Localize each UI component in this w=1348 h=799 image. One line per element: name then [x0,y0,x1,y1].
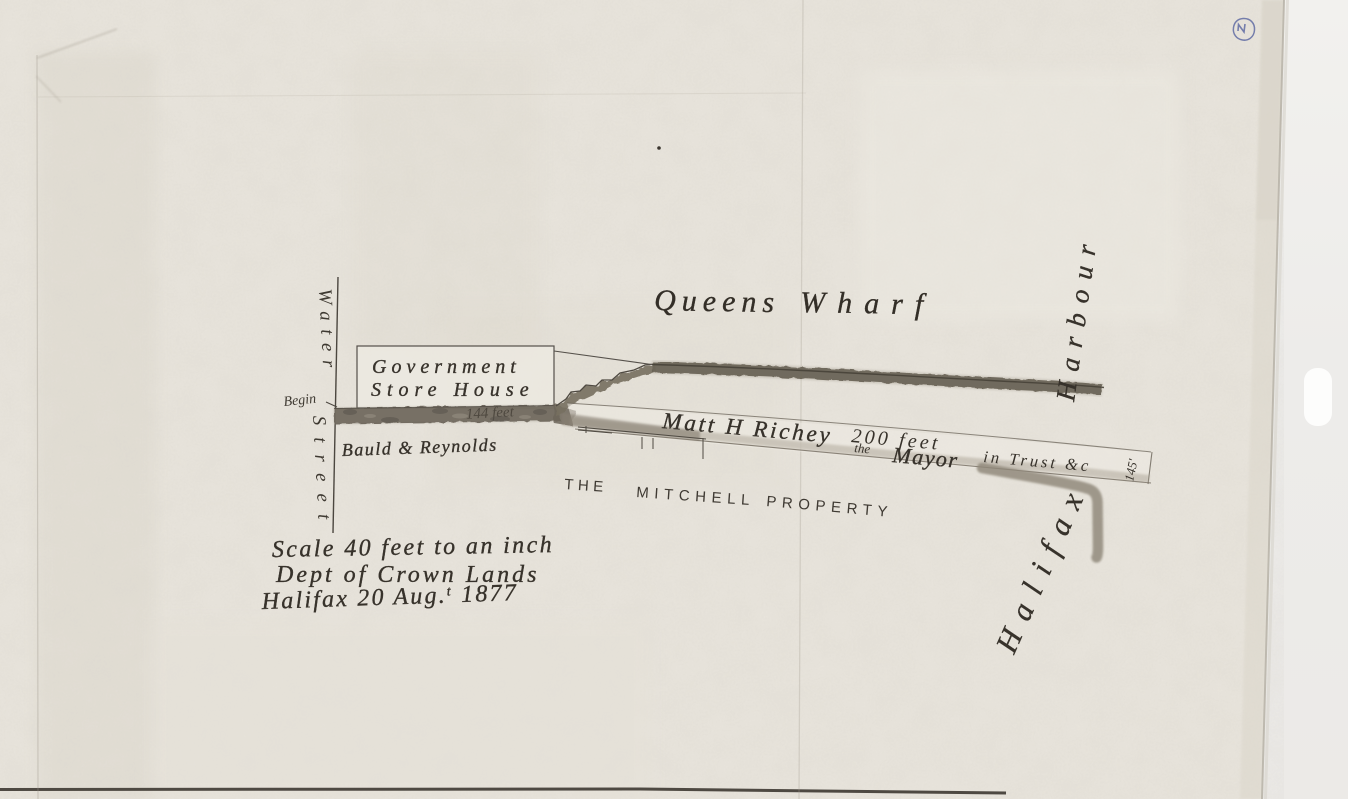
svg-text:Wharf: Wharf [800,286,936,321]
svg-text:Store House: Store House [371,379,535,401]
svg-text:Scale 40 feet to an inch: Scale 40 feet to an inch [272,532,555,563]
svg-text:Government: Government [372,356,521,378]
svg-text:Queens: Queens [654,284,781,319]
svg-text:THE: THE [564,476,609,496]
svg-text:the: the [854,440,871,456]
